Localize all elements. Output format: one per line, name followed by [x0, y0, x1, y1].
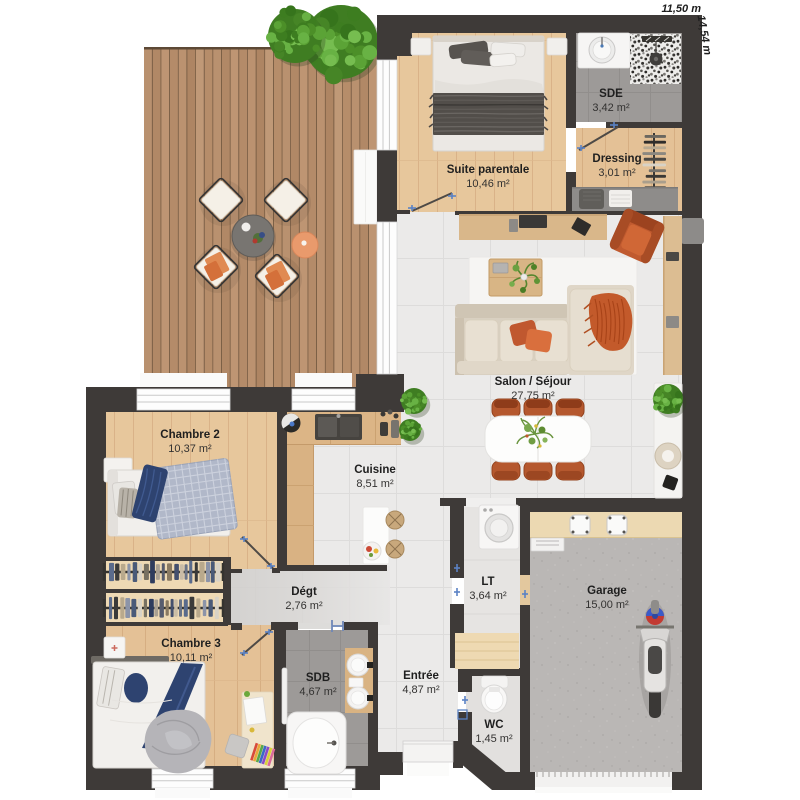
- svg-text:8,51 m²: 8,51 m²: [356, 478, 394, 490]
- svg-text:11,50 m: 11,50 m: [661, 3, 701, 15]
- svg-text:SDE: SDE: [599, 88, 623, 100]
- svg-text:Garage: Garage: [587, 585, 627, 597]
- svg-text:SDB: SDB: [306, 672, 330, 684]
- svg-text:Dégt: Dégt: [291, 586, 317, 598]
- svg-text:Cuisine: Cuisine: [354, 464, 396, 476]
- svg-text:Salon / Séjour: Salon / Séjour: [495, 376, 572, 388]
- svg-text:3,64 m²: 3,64 m²: [469, 590, 507, 602]
- svg-text:1,45 m²: 1,45 m²: [475, 733, 513, 745]
- svg-text:Dressing: Dressing: [592, 153, 641, 165]
- svg-text:LT: LT: [481, 576, 494, 588]
- svg-text:2,76 m²: 2,76 m²: [285, 600, 323, 612]
- svg-text:Entrée: Entrée: [403, 670, 439, 682]
- svg-text:27,75 m²: 27,75 m²: [511, 390, 555, 402]
- svg-text:Chambre 2: Chambre 2: [160, 429, 219, 441]
- svg-text:WC: WC: [484, 719, 503, 731]
- svg-text:Suite parentale: Suite parentale: [447, 164, 529, 176]
- svg-text:4,87 m²: 4,87 m²: [402, 684, 440, 696]
- svg-text:10,46 m²: 10,46 m²: [466, 178, 510, 190]
- svg-text:10,37 m²: 10,37 m²: [168, 443, 212, 455]
- svg-text:Chambre 3: Chambre 3: [161, 638, 220, 650]
- svg-text:15,00 m²: 15,00 m²: [585, 599, 629, 611]
- svg-text:10,11 m²: 10,11 m²: [170, 652, 213, 664]
- svg-text:3,42 m²: 3,42 m²: [592, 102, 630, 114]
- svg-text:4,67 m²: 4,67 m²: [299, 686, 337, 698]
- svg-text:3,01 m²: 3,01 m²: [598, 167, 636, 179]
